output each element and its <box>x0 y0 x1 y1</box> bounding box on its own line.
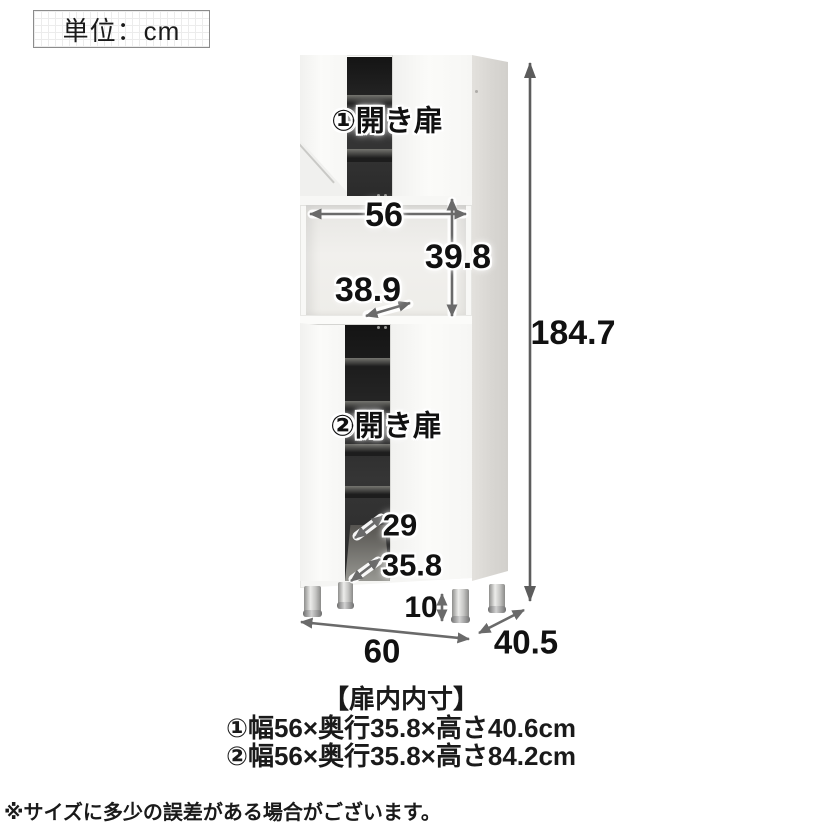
lower-cabinet-interior <box>345 325 390 581</box>
dim-label-width: 60 <box>364 635 401 668</box>
lower-shelf-3 <box>345 444 390 456</box>
leg-back-left <box>338 582 353 607</box>
size-disclaimer: ※サイズに多少の誤差がある場合がございます。 <box>4 796 441 825</box>
specs-line-1: ①幅56×奥行35.8×高さ40.6cm <box>226 714 576 742</box>
leg-front-right <box>452 589 469 621</box>
specs-title: 【扉内内寸】 <box>226 684 576 714</box>
dim-label-inner-width: 56 <box>365 198 403 232</box>
cabinet-side-panel <box>472 53 508 581</box>
unit-label: 単位：cm <box>63 11 181 48</box>
side-keyhole-dot <box>475 90 478 93</box>
dim-label-open-depth: 38.9 <box>335 273 401 307</box>
specs-line-2: ②幅56×奥行35.8×高さ84.2cm <box>226 742 576 770</box>
lower-shelf-1 <box>345 358 390 370</box>
leg-front-left <box>304 586 321 615</box>
unit-box: 単位：cm <box>33 10 210 48</box>
lower-door-handle-dot <box>377 326 380 329</box>
dim-label-depth-29: 29 <box>383 510 417 541</box>
dim-label-depth-35-8: 35.8 <box>382 550 442 581</box>
dim-label-open-height: 39.8 <box>425 240 491 274</box>
dim-label-total-height: 184.7 <box>530 316 615 350</box>
door1-label: ①開き扉 <box>331 108 443 137</box>
lower-shelf-4 <box>345 486 390 498</box>
product-dimension-diagram: 単位：cm <box>0 0 830 830</box>
dim-label-leg-height: 10 <box>404 593 437 623</box>
inner-dimensions-specs: 【扉内内寸】 ①幅56×奥行35.8×高さ40.6cm ②幅56×奥行35.8×… <box>226 684 576 770</box>
upper-shelf-2 <box>347 149 392 162</box>
leg-back-right <box>489 584 505 611</box>
door2-label: ②開き扉 <box>330 413 442 442</box>
dim-label-depth: 40.5 <box>494 626 558 659</box>
lower-left-door <box>300 323 345 581</box>
lower-door-handle-dot-2 <box>384 326 387 329</box>
